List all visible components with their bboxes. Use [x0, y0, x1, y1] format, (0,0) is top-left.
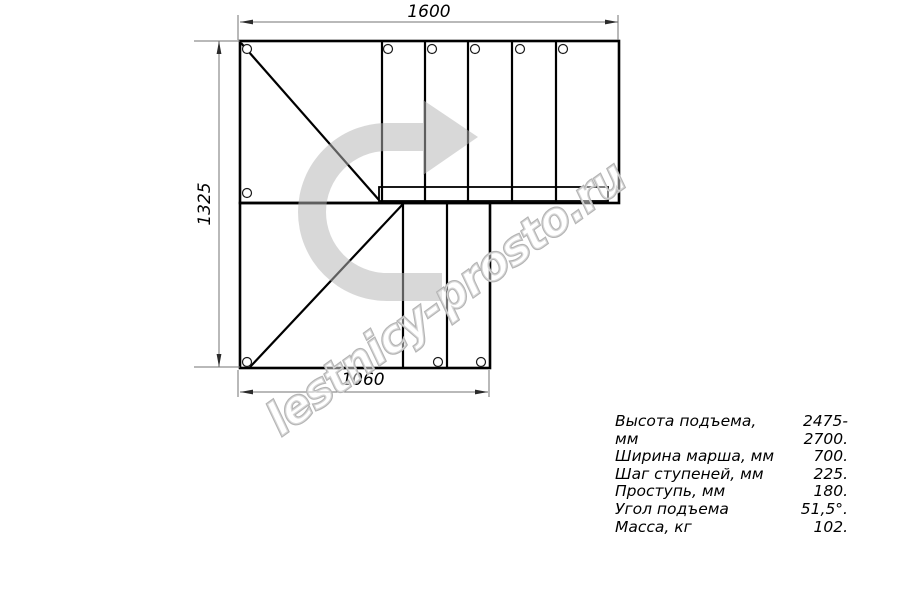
dim-arrow-icon: [217, 41, 222, 54]
dimension-left-label: 1325: [195, 182, 215, 225]
spec-label: Шаг ступеней, мм: [615, 466, 764, 484]
spec-value: 700.: [813, 448, 848, 466]
mounting-hole: [384, 45, 393, 54]
spec-label: Ширина марша, мм: [615, 448, 774, 466]
stair-plan-drawing: 1600 1325 1060 lestnicy-prosto.ru Высота…: [0, 0, 900, 600]
mounting-hole: [471, 45, 480, 54]
spec-row: Угол подъема 51,5°.: [615, 501, 848, 519]
mounting-hole: [243, 358, 252, 367]
dim-arrow-icon: [475, 390, 488, 395]
mounting-hole: [559, 45, 568, 54]
mounting-hole: [477, 358, 486, 367]
spec-label: Масса, кг: [615, 519, 692, 537]
spec-label: Высота подъема, мм: [615, 413, 768, 448]
mounting-hole: [434, 358, 443, 367]
spec-row: Проступь, мм 180.: [615, 483, 848, 501]
mounting-hole: [243, 45, 252, 54]
mounting-hole: [428, 45, 437, 54]
mounting-hole: [243, 189, 252, 198]
spec-value: 225.: [813, 466, 848, 484]
spec-value: 180.: [813, 483, 848, 501]
dimension-top-label: 1600: [407, 2, 450, 22]
spec-row: Ширина марша, мм 700.: [615, 448, 848, 466]
spec-row: Масса, кг 102.: [615, 519, 848, 537]
dim-arrow-icon: [605, 20, 618, 25]
spec-row: Высота подъема, мм 2475-2700.: [615, 413, 848, 448]
dim-arrow-icon: [217, 354, 222, 367]
mounting-hole: [516, 45, 525, 54]
spec-value: 2475-2700.: [768, 413, 848, 448]
spec-value: 102.: [813, 519, 848, 537]
spec-row: Шаг ступеней, мм 225.: [615, 466, 848, 484]
dim-arrow-icon: [240, 20, 253, 25]
spec-label: Угол подъема: [615, 501, 729, 519]
dim-arrow-icon: [240, 390, 253, 395]
spec-value: 51,5°.: [801, 501, 848, 519]
upper-flight-tread-lines: [382, 41, 556, 203]
specs-table: Высота подъема, мм 2475-2700. Ширина мар…: [615, 413, 848, 536]
spec-label: Проступь, мм: [615, 483, 725, 501]
